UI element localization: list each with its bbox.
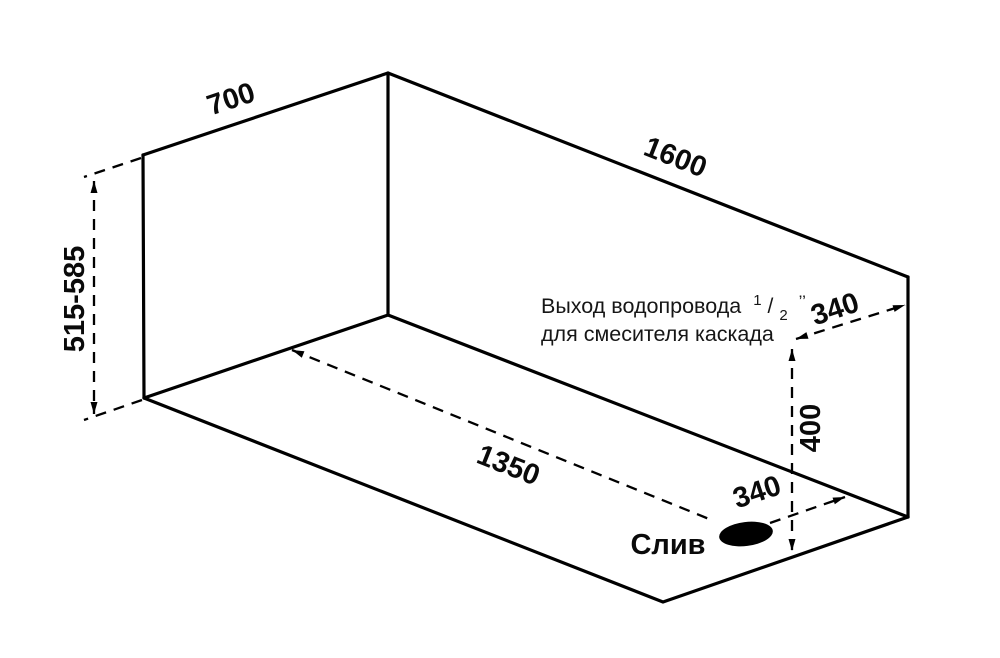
outlet-note-prefix: Выход водопровода bbox=[541, 294, 741, 318]
dimension-outlet-from-edge: 340 bbox=[807, 287, 863, 333]
dimension-width-top: 700 bbox=[203, 77, 259, 123]
drain-label: Слив bbox=[630, 529, 705, 561]
outlet-note-sub: 2 bbox=[779, 307, 787, 324]
dimension-outlet-height: 400 bbox=[795, 404, 827, 452]
left-vertical-edge bbox=[143, 155, 144, 398]
dimension-height-range: 515-585 bbox=[59, 246, 91, 352]
outlet-note-line2: для смесителя каскада bbox=[541, 322, 774, 346]
outlet-note-slash: / bbox=[768, 295, 774, 318]
outlet-note-inch-mark: ’’ bbox=[799, 292, 806, 311]
outlet-note-sup: 1 bbox=[753, 292, 761, 309]
dimension-drain-diagonal: 1350 bbox=[472, 439, 544, 492]
extension-line-top-left bbox=[84, 158, 141, 177]
drain-hole bbox=[718, 519, 775, 549]
diagram-canvas: 700 1600 515-585 1350 340 400 340 Слив В… bbox=[0, 0, 1000, 658]
diagonal-1350-dimension-line bbox=[292, 350, 714, 521]
outlet-note-line1: Выход водопровода 1 / 2 ’’ bbox=[541, 286, 806, 325]
extension-line-bottom-left bbox=[84, 400, 142, 420]
bathtub-dimension-diagram: 700 1600 515-585 1350 340 400 340 Слив В… bbox=[0, 0, 1000, 658]
dimension-drain-from-wall: 340 bbox=[729, 470, 785, 516]
bottom-near-edges bbox=[144, 398, 908, 602]
